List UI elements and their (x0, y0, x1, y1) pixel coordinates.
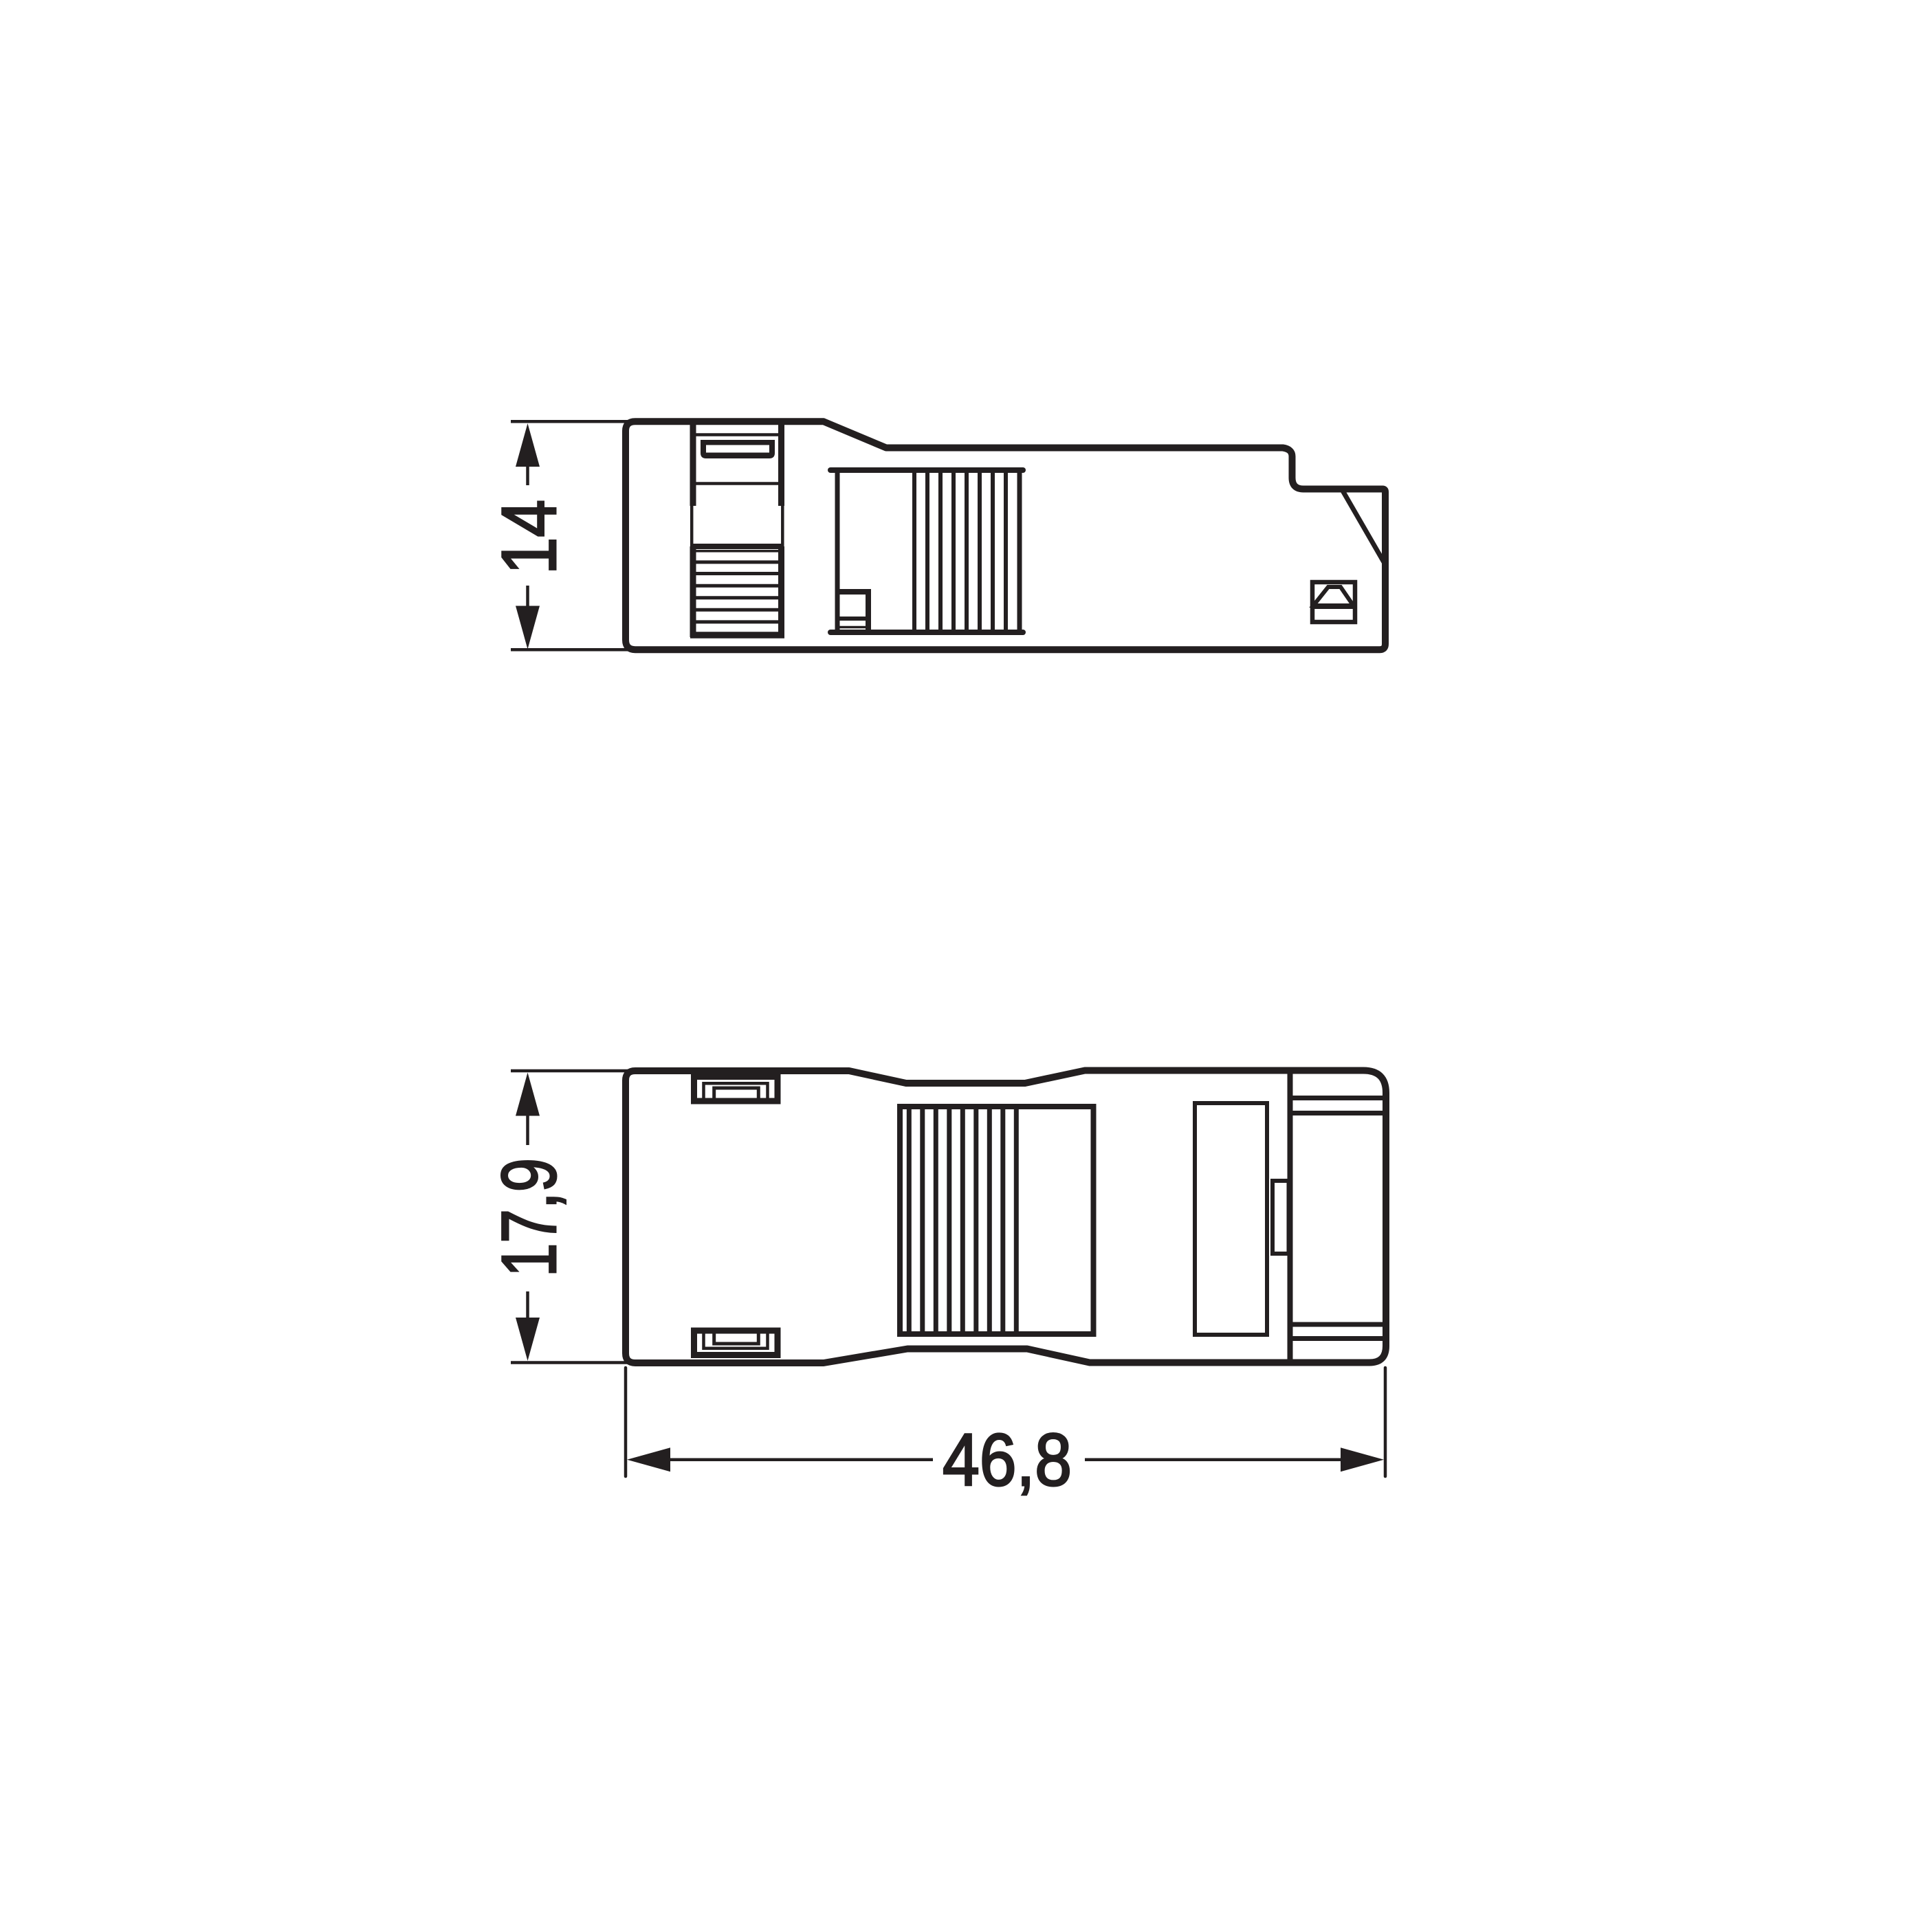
svg-text:17,9: 17,9 (486, 1158, 572, 1277)
svg-text:14: 14 (486, 500, 572, 575)
svg-text:46,8: 46,8 (943, 1418, 1072, 1501)
